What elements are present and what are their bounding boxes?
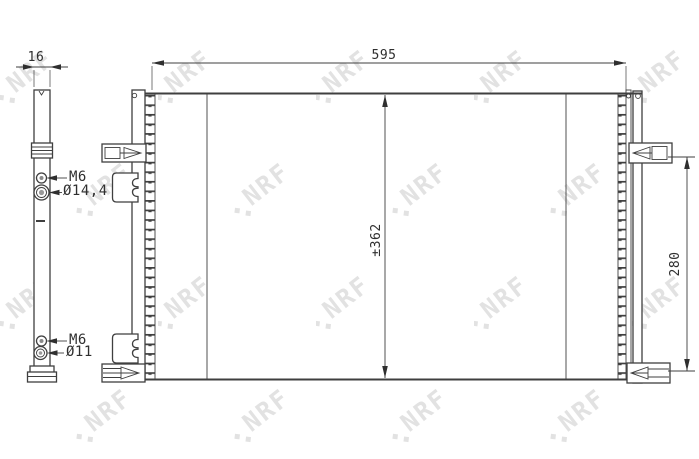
right-tank-top-port	[627, 94, 631, 98]
dim-connector-spacing-label: 280	[668, 244, 684, 284]
left-tank-top-port	[132, 93, 136, 97]
upper-pipe-hole	[39, 190, 44, 195]
lower-pipe-hole	[39, 351, 43, 355]
side-tube-clamp	[32, 143, 53, 158]
dim-overall-width-label: 595	[360, 48, 408, 63]
drawing-layer	[0, 0, 699, 459]
upper-pipe-diameter-label: Ø14,4	[63, 184, 108, 199]
leader-upper-pipe	[49, 190, 62, 196]
side-tube	[34, 90, 50, 368]
upper-bolt-hole	[40, 176, 44, 180]
lower-pipe-diameter-label: Ø11	[66, 345, 93, 360]
core-fins-right	[566, 93, 618, 380]
dim-side-depth-label: 16	[20, 50, 52, 65]
lower-bolt-hole	[40, 339, 44, 343]
fitting-bottom-left	[102, 364, 145, 382]
condenser-technical-drawing: NRF NRF	[0, 0, 699, 459]
left-tube-ends	[145, 93, 155, 380]
receiver-drier	[633, 91, 642, 383]
bracket-bottom-left	[113, 334, 139, 363]
dim-core-height-label: ±362	[369, 216, 385, 264]
fitting-bottom-right	[627, 363, 670, 383]
right-header-tank	[626, 90, 631, 380]
fitting-top-right	[629, 143, 672, 163]
side-tube-foot	[28, 366, 57, 382]
dimension-595	[152, 60, 626, 90]
bracket-top-left	[113, 173, 139, 202]
fitting-top-left	[102, 144, 146, 162]
dimension-16	[16, 64, 68, 87]
side-view	[28, 90, 68, 382]
front-view	[102, 90, 672, 383]
right-tube-ends	[618, 93, 626, 380]
core-fins-left	[155, 93, 207, 380]
